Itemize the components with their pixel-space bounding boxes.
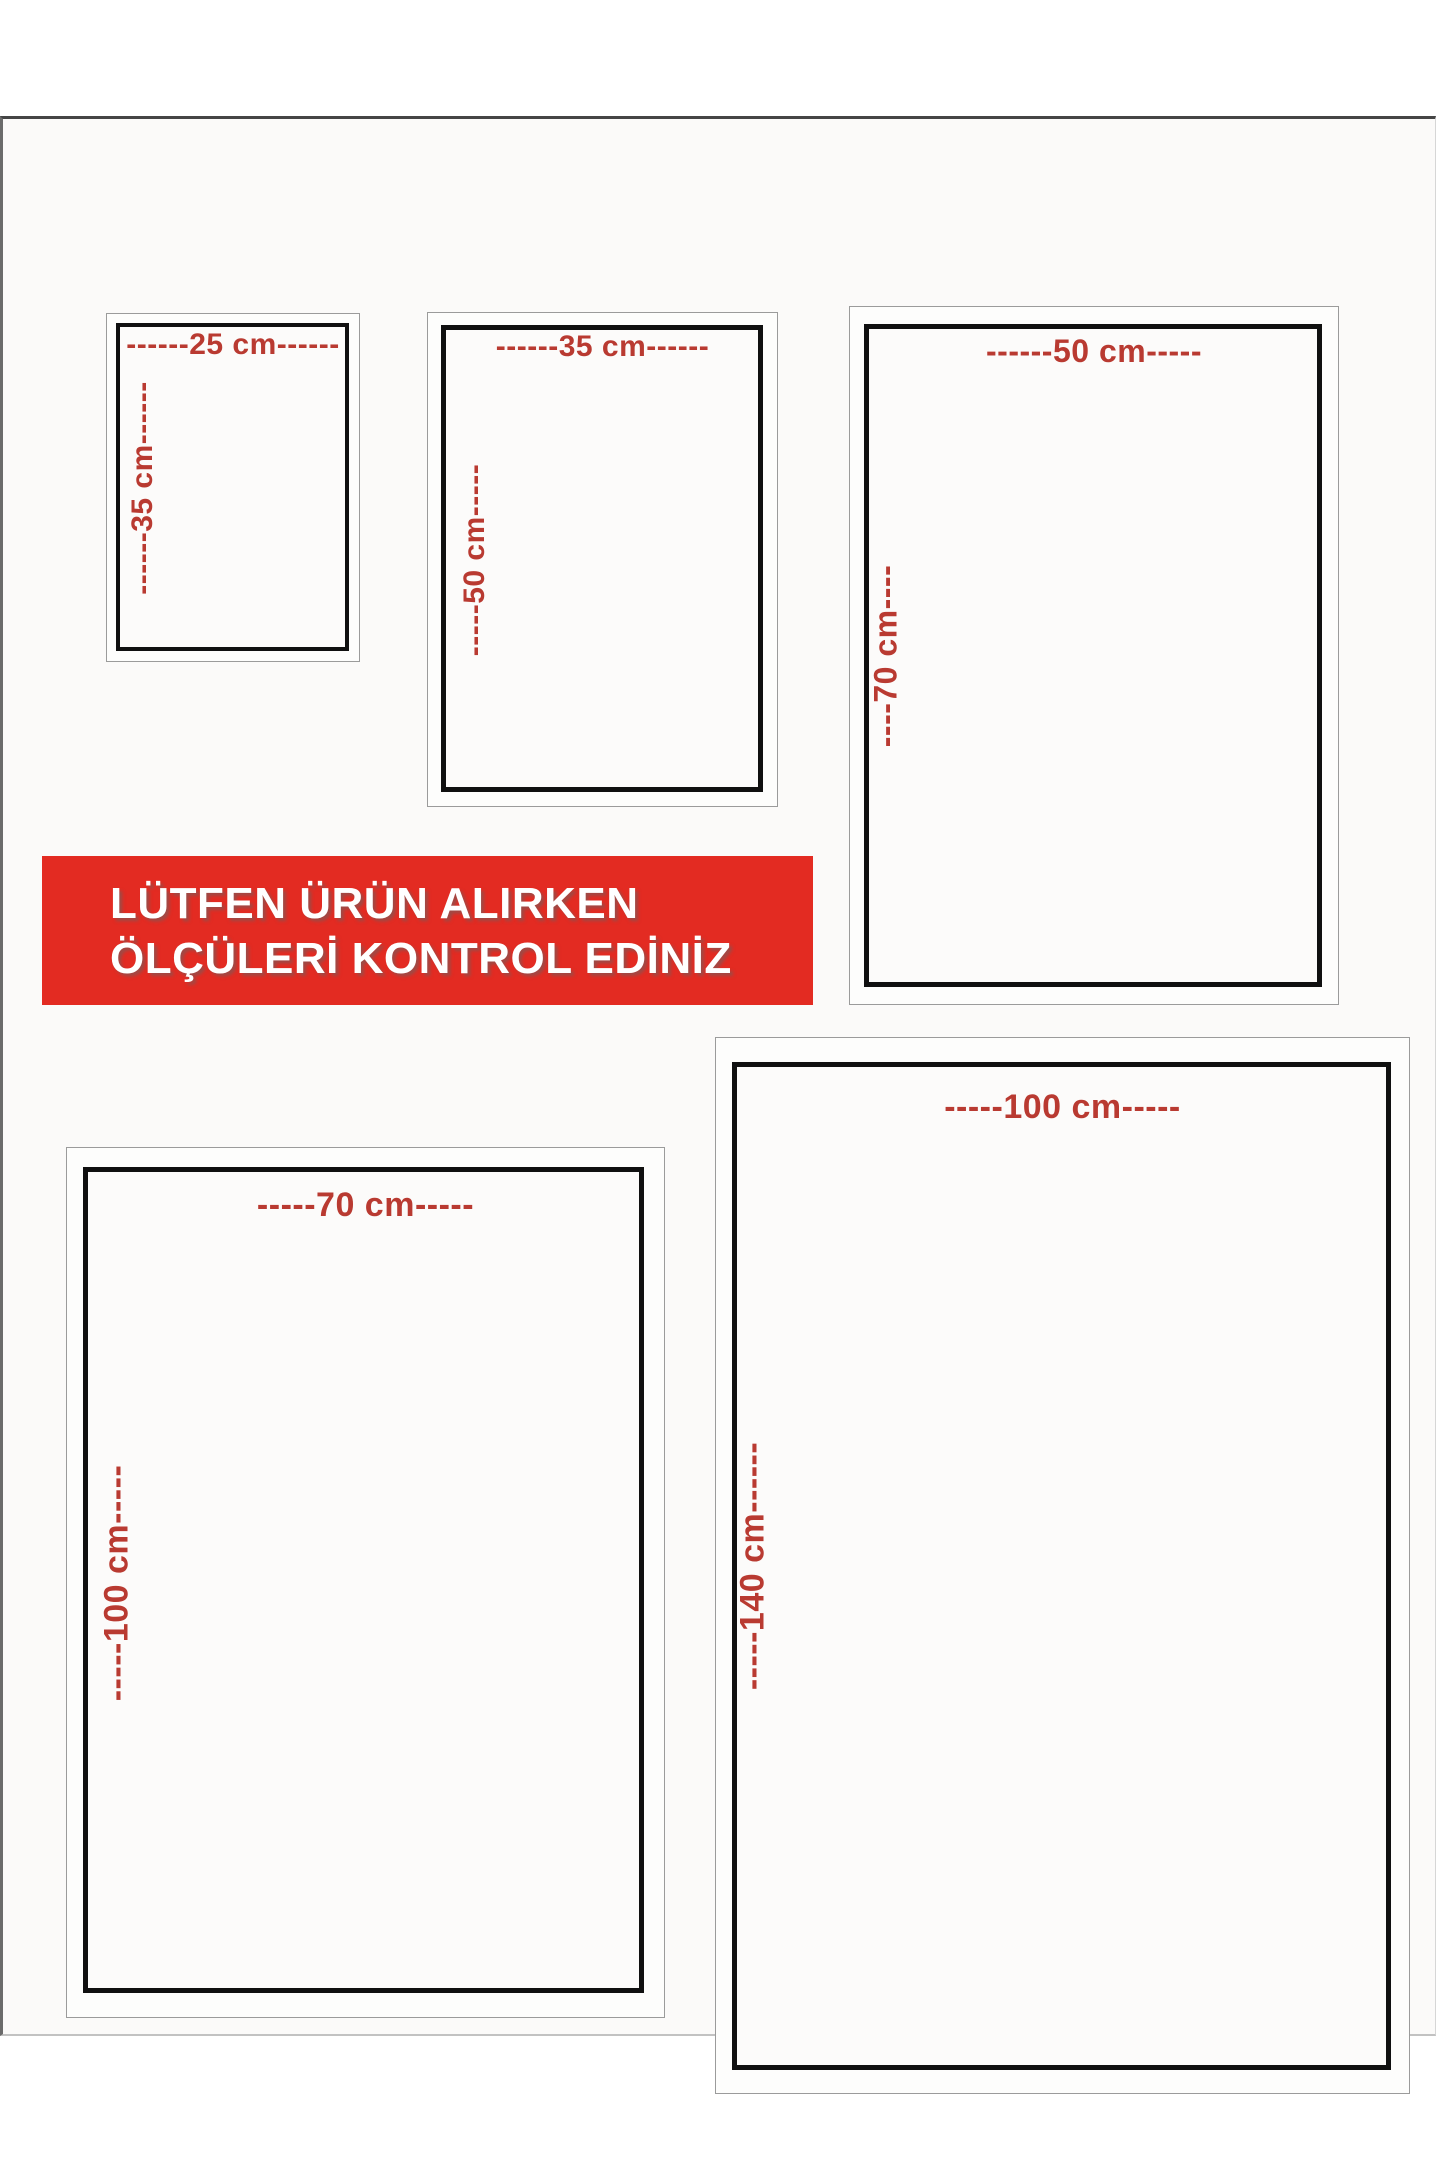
size-box-25x35: ------25 cm------ ------35 cm------ [106, 313, 360, 662]
size-box-35x50: ------35 cm------ -----50 cm----- [427, 312, 778, 807]
width-label-50cm: ------50 cm----- [850, 333, 1338, 370]
height-label-50cm: -----50 cm----- [458, 463, 492, 655]
size-frame-70x100 [83, 1167, 644, 1993]
size-frame-50x70 [864, 324, 1322, 987]
notice-banner: LÜTFEN ÜRÜN ALIRKEN ÖLÇÜLERİ KONTROL EDİ… [42, 856, 813, 1005]
size-box-70x100: -----70 cm----- -----100 cm----- [66, 1147, 665, 2018]
height-label-35cm: ------35 cm------ [126, 381, 160, 594]
width-label-35cm: ------35 cm------ [428, 330, 777, 364]
size-frame-100x140 [732, 1062, 1391, 2070]
height-label-100cm: -----100 cm----- [98, 1464, 137, 1701]
width-label-100cm: -----100 cm----- [716, 1088, 1409, 1127]
size-box-50x70: ------50 cm----- ----70 cm---- [849, 306, 1339, 1005]
width-label-25cm: ------25 cm------ [107, 328, 359, 362]
size-box-100x140: -----100 cm----- -----140 cm------ [715, 1037, 1410, 2094]
notice-banner-line2: ÖLÇÜLERİ KONTROL EDİNİZ [110, 931, 813, 986]
size-chart-image: ------25 cm------ ------35 cm------ ----… [0, 116, 1436, 2036]
height-label-140cm: -----140 cm------ [734, 1441, 773, 1689]
width-label-70cm: -----70 cm----- [67, 1186, 664, 1225]
notice-banner-line1: LÜTFEN ÜRÜN ALIRKEN [110, 876, 813, 931]
height-label-70cm: ----70 cm---- [868, 564, 905, 746]
